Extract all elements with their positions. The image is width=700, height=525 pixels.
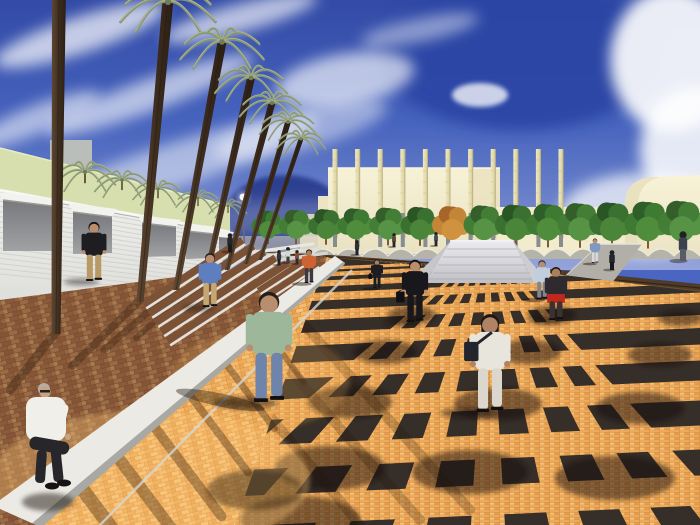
person-arm	[314, 256, 316, 266]
walkway-shadow-blob	[207, 470, 303, 510]
palm-crown-center	[219, 39, 225, 45]
person-shoe	[416, 319, 424, 321]
scene-canvas	[0, 0, 700, 525]
person-legs	[296, 258, 299, 264]
person-head	[375, 260, 380, 265]
person-skirt	[547, 294, 565, 303]
person-arm	[102, 234, 106, 251]
person-shoe	[95, 278, 103, 280]
person-torso	[202, 263, 218, 284]
tree-canopy	[317, 220, 336, 239]
person-leg	[478, 368, 488, 410]
person-head	[306, 250, 311, 255]
person-head	[355, 240, 359, 244]
tree-canopy	[600, 217, 624, 241]
person-head	[277, 250, 281, 254]
person-briefcase	[396, 292, 405, 303]
tree-canopy	[537, 218, 560, 241]
palm-crown-center	[197, 197, 200, 200]
person-torso	[406, 271, 425, 295]
person-shadow	[383, 320, 420, 327]
person-sunglasses	[40, 390, 50, 393]
person-shadow	[292, 282, 312, 286]
cloud-puff	[452, 83, 508, 107]
person-leg	[378, 275, 381, 286]
person-leg	[492, 368, 502, 407]
person-leg	[87, 255, 93, 280]
tree-canopy	[473, 219, 495, 241]
tree-canopy	[346, 220, 365, 239]
person-hand	[65, 434, 71, 440]
person-head	[286, 247, 290, 251]
person-head	[260, 295, 278, 313]
person-head	[434, 232, 437, 235]
palm-crown-center	[156, 187, 159, 190]
person-legs	[393, 241, 396, 247]
person-torso	[475, 332, 505, 370]
tree-canopy	[441, 219, 462, 240]
person-shoe	[309, 281, 313, 282]
person-legs	[435, 240, 438, 246]
person-arm	[217, 264, 221, 280]
tree-canopy	[287, 221, 305, 239]
person-arm	[381, 265, 383, 273]
person-shoe	[254, 398, 268, 402]
person-arm	[199, 264, 203, 280]
person-shoe	[304, 282, 308, 283]
person-shadow	[182, 305, 214, 311]
person-arm	[534, 268, 537, 279]
person-shoe	[549, 318, 556, 320]
person-briefcase	[368, 274, 372, 279]
person-leg	[592, 252, 595, 262]
person-leg	[310, 268, 313, 282]
person-leg	[203, 283, 209, 306]
person-leg	[374, 275, 377, 287]
person-hand	[504, 361, 510, 367]
person-shoe	[211, 304, 218, 306]
person-hand	[285, 345, 292, 352]
palm-crown-center	[249, 76, 254, 81]
person-legs	[680, 249, 686, 261]
person-arm	[545, 278, 549, 294]
tree-canopy	[568, 217, 591, 240]
square-shadow	[628, 343, 692, 367]
person-arm	[246, 314, 254, 346]
person-legs	[228, 244, 232, 252]
person-arm	[563, 278, 567, 294]
plaza-rendering	[0, 0, 700, 525]
person-arm	[598, 243, 600, 250]
person-shoe	[491, 407, 503, 410]
person-legs	[278, 259, 281, 265]
person-arm	[82, 234, 86, 251]
person-hand	[102, 250, 106, 254]
person-torso	[85, 233, 103, 256]
person-shoe	[203, 305, 210, 307]
person-shoe	[373, 287, 377, 288]
person-arm	[424, 272, 429, 290]
person-leg	[407, 294, 413, 321]
person-torso	[591, 243, 598, 253]
person-bag	[464, 342, 478, 361]
person-leg	[595, 252, 598, 262]
person-shoe	[270, 396, 284, 400]
person-shoe	[592, 262, 595, 263]
person-head	[410, 262, 420, 272]
person-legs	[610, 262, 614, 270]
person-shoe	[477, 409, 489, 412]
person-leg	[271, 353, 282, 397]
person-hand	[424, 290, 428, 294]
person-shoe	[57, 480, 71, 487]
person-head	[539, 261, 545, 267]
person-leg	[416, 294, 422, 319]
tree-canopy	[636, 217, 661, 242]
person-leg	[550, 301, 555, 319]
palm-crown-center	[227, 205, 230, 208]
person-hand	[82, 250, 86, 254]
person-shoe	[86, 279, 94, 281]
palm-crown-center	[286, 120, 290, 124]
person-leg	[95, 255, 101, 280]
person-torso	[252, 312, 285, 355]
person-leg	[211, 283, 217, 304]
person-torso	[373, 265, 382, 276]
person-shoe	[542, 297, 547, 298]
person-head	[679, 231, 686, 238]
person-shoe	[595, 262, 598, 263]
person-shadow	[64, 279, 99, 285]
square-shadow	[555, 456, 675, 500]
square-shadow	[658, 310, 700, 326]
person-leg	[557, 301, 562, 317]
palm-crown-center	[120, 178, 124, 182]
square-shadow	[596, 392, 684, 424]
tree-canopy	[410, 219, 430, 239]
person-arm	[302, 256, 304, 266]
person-arm	[402, 272, 407, 290]
person-head	[552, 269, 561, 278]
person-head	[392, 233, 395, 236]
person-shoe	[557, 317, 564, 319]
person-head	[228, 233, 233, 238]
person-arm	[371, 265, 373, 273]
person-leg	[256, 353, 267, 400]
person-shadow	[22, 493, 74, 511]
palm-crown-center	[270, 101, 274, 105]
person-shoe	[45, 483, 59, 490]
person-legs	[356, 249, 359, 255]
person-legs	[286, 257, 289, 263]
person-hand	[470, 361, 476, 367]
person-arm	[284, 314, 292, 346]
person-head	[593, 239, 597, 243]
person-arm	[590, 243, 592, 250]
person-head	[482, 317, 498, 333]
person-leg	[537, 282, 541, 299]
person-shoe	[377, 286, 381, 287]
palm-crown-center	[83, 170, 87, 174]
person-shoe	[537, 298, 542, 299]
person-hand	[246, 345, 253, 352]
person-shadow	[440, 408, 498, 419]
person-arm	[503, 334, 510, 363]
window	[3, 199, 52, 251]
tree-canopy	[505, 218, 527, 240]
person-head	[206, 255, 215, 264]
palm-crown-center	[299, 137, 302, 140]
person-head	[295, 250, 298, 253]
square-shadow	[353, 340, 417, 364]
person-head	[610, 250, 615, 255]
person-head	[89, 224, 99, 234]
person-shadow	[522, 298, 545, 302]
person-torso	[304, 255, 314, 268]
person-shadow	[583, 263, 597, 266]
person-shadow	[529, 318, 560, 324]
person-leg	[305, 268, 308, 282]
person-shadow	[362, 287, 379, 290]
person-shoe	[406, 320, 414, 322]
